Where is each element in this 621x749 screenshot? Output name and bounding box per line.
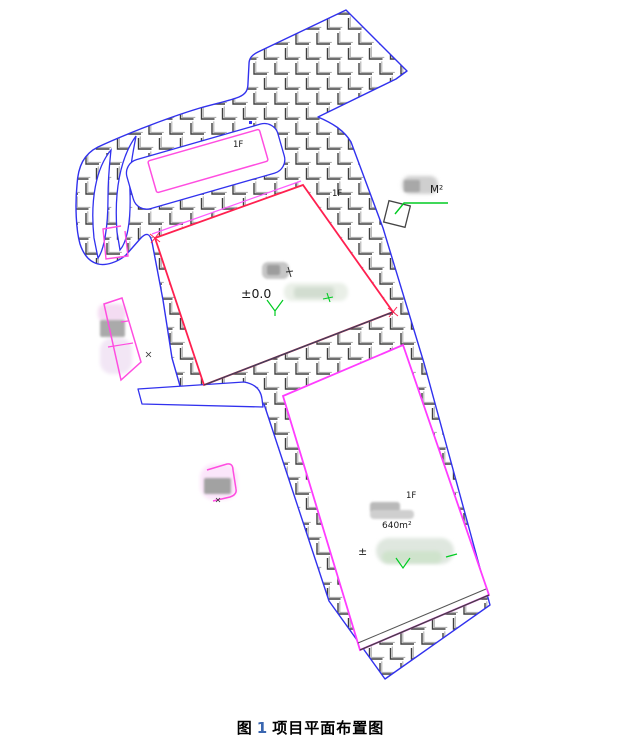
building-a-elevation-text: ±0.0 [241, 286, 271, 301]
caption-prefix: 图 [237, 719, 253, 737]
redaction-blur [267, 265, 280, 275]
illegible-glyph [146, 352, 151, 357]
figure-caption: 图1项目平面布置图 [0, 717, 621, 738]
building-a-floor-label: 1F [332, 189, 342, 199]
caption-title: 项目平面布置图 [272, 719, 384, 737]
redaction-blur [404, 180, 420, 192]
area-callout-box [384, 201, 411, 228]
redaction-blur [382, 551, 442, 563]
caption-number: 1 [253, 719, 272, 737]
building-b-floor-label: 1F [406, 491, 416, 501]
redaction-blur [98, 304, 126, 322]
access-channel [138, 382, 263, 407]
south-west-structure [200, 464, 238, 502]
annex-floor-label: 1F [233, 140, 243, 150]
building-b-area-text: 640m² [382, 521, 412, 531]
west-structure [98, 298, 151, 380]
area-callout-unit: M² [430, 184, 443, 196]
stray-dot [249, 121, 252, 124]
building-b-elevation-prefix: ± [358, 545, 367, 558]
redaction-blur [204, 478, 231, 494]
site-plan-canvas: 1F 1F ±0.0 M² 1F 640m² [0, 0, 621, 749]
redaction-blur [370, 510, 414, 519]
figure-page: 1F 1F ±0.0 M² 1F 640m² [0, 0, 621, 749]
